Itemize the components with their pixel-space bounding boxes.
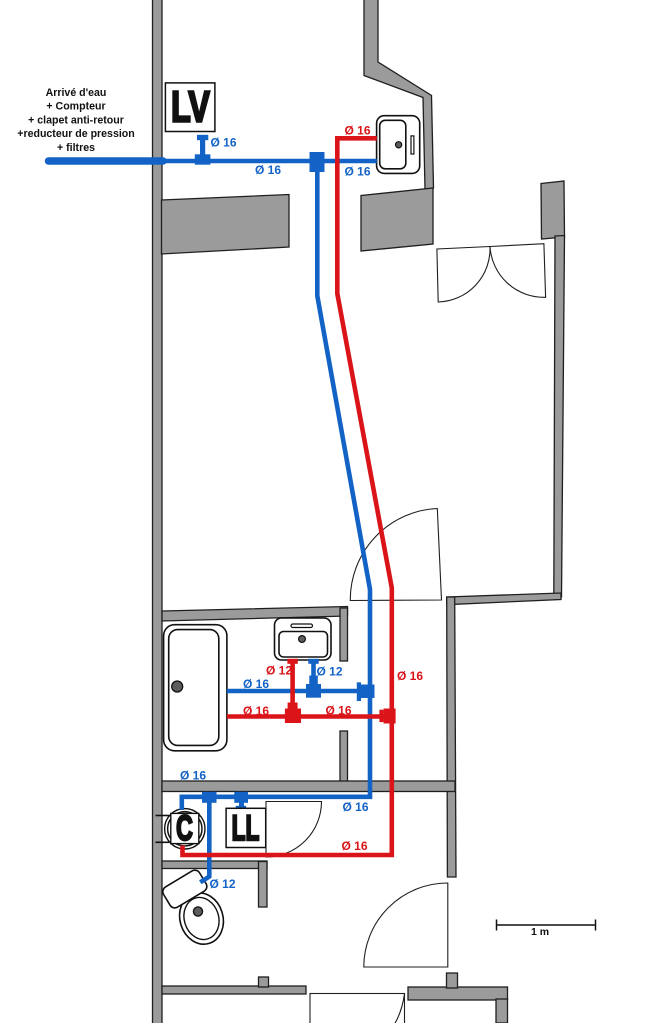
svg-text:LL: LL: [232, 809, 260, 848]
svg-text:C: C: [176, 809, 193, 848]
svg-text:LV: LV: [171, 83, 210, 132]
svg-text:Ø 16: Ø 16: [255, 163, 281, 177]
svg-text:Ø 16: Ø 16: [345, 124, 371, 138]
svg-text:Ø 16: Ø 16: [397, 669, 423, 683]
svg-text:+ Compteur: + Compteur: [46, 101, 105, 113]
svg-text:Ø 16: Ø 16: [342, 839, 368, 853]
svg-text:Arrivé d'eau: Arrivé d'eau: [46, 87, 107, 99]
svg-text:Ø 16: Ø 16: [343, 800, 369, 814]
svg-text:Ø 12: Ø 12: [210, 877, 236, 891]
svg-text:Ø 16: Ø 16: [180, 769, 206, 783]
svg-text:Ø 16: Ø 16: [211, 136, 237, 150]
svg-text:Ø 16: Ø 16: [345, 165, 371, 179]
svg-text:Ø 12: Ø 12: [266, 664, 292, 678]
svg-text:Ø 12: Ø 12: [317, 665, 343, 679]
svg-text:+ clapet anti-retour: + clapet anti-retour: [28, 114, 124, 126]
svg-text:Ø 16: Ø 16: [326, 704, 352, 718]
svg-text:Ø 16: Ø 16: [243, 704, 269, 718]
svg-text:+ filtres: + filtres: [57, 142, 95, 154]
svg-text:1 m: 1 m: [531, 926, 549, 938]
svg-text:+reducteur de pression: +reducteur de pression: [17, 128, 134, 140]
svg-text:Ø 16: Ø 16: [243, 677, 269, 691]
